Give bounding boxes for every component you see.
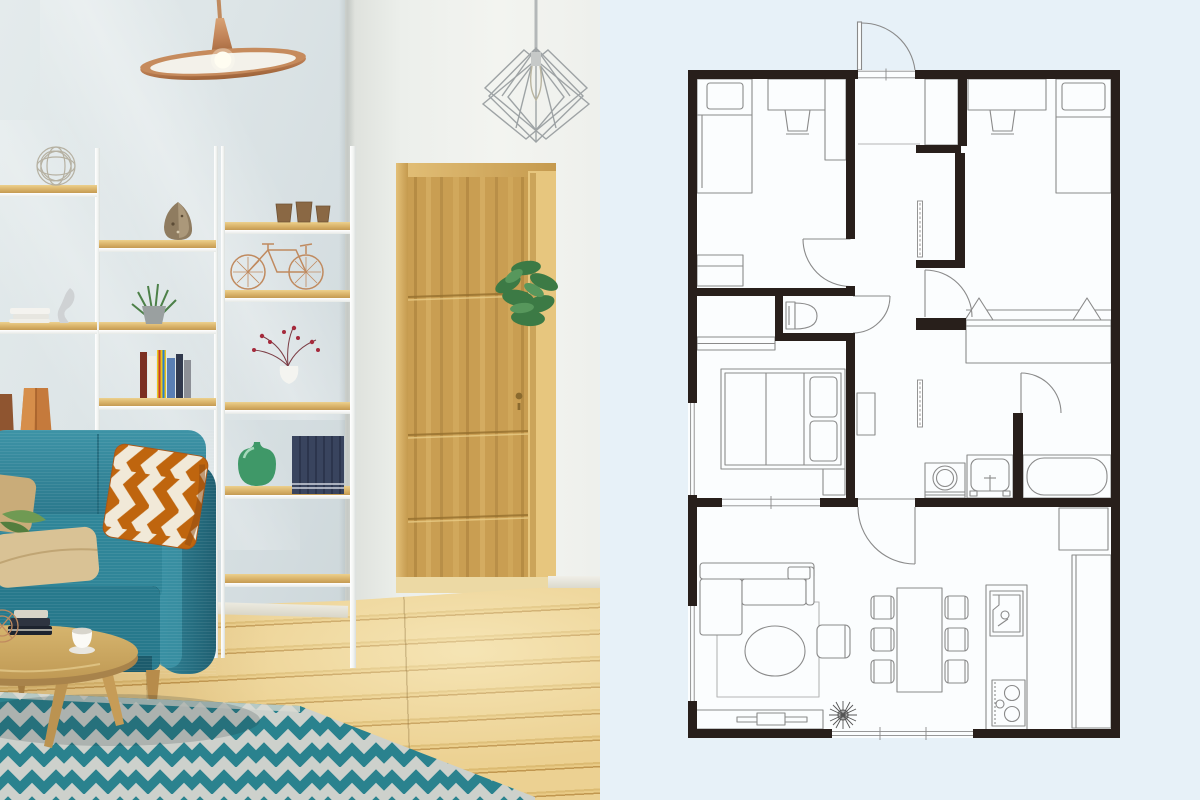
door-plant	[478, 244, 600, 340]
book-stack	[8, 610, 52, 635]
bedroom1-cabinet	[697, 255, 743, 286]
wire-ball	[35, 145, 78, 187]
fridge	[1059, 508, 1108, 550]
chevron-cushion	[102, 443, 210, 551]
side-counter	[1072, 555, 1111, 728]
copper-disc-pendant-lamp	[125, 0, 325, 100]
dining-table	[897, 588, 942, 692]
door-keyhole	[518, 403, 521, 410]
entry-door	[858, 22, 916, 70]
entry-closet	[925, 79, 958, 145]
bedroom2-bed	[1056, 79, 1111, 193]
double-bed	[721, 369, 845, 469]
plan-coffee-table	[745, 626, 805, 676]
washing-machine	[925, 463, 965, 498]
door-jamb-left	[396, 163, 408, 593]
living-room-photo	[0, 0, 600, 800]
hall-shelf	[857, 393, 875, 435]
door-knob	[516, 393, 523, 400]
baseboard	[548, 576, 600, 588]
wooden-door	[396, 163, 556, 593]
nightstand	[823, 469, 845, 495]
door-slab	[408, 177, 528, 587]
vanity-sink	[967, 455, 1013, 498]
stove	[992, 680, 1025, 726]
plan-armchair	[817, 625, 850, 658]
colorful-books	[140, 350, 191, 398]
potted-succulent	[132, 284, 176, 324]
clay-cups	[276, 202, 330, 222]
beige-cushion-large	[0, 526, 100, 589]
tv-stand	[695, 710, 823, 729]
round-coffee-table	[0, 592, 160, 762]
floor-plan	[678, 12, 1130, 788]
figurine	[58, 288, 75, 323]
copper-bicycle-model	[231, 244, 323, 289]
navy-book-set	[292, 436, 344, 494]
bedroom1-bed	[697, 79, 752, 193]
plan-plant	[829, 701, 857, 729]
lamp-socket	[531, 52, 541, 66]
decorative-stone	[164, 202, 192, 240]
bedroom1-wardrobe	[825, 79, 846, 160]
green-glass-vase	[238, 442, 276, 486]
berry-branch-vase	[252, 326, 320, 384]
bathtub	[1023, 455, 1111, 498]
wire-diamond-pendant-lamp	[472, 0, 600, 152]
master-closet-shelf	[697, 337, 775, 350]
screenshot-root	[0, 0, 1200, 800]
white-books	[9, 308, 50, 323]
floor-plan-panel	[600, 0, 1200, 800]
